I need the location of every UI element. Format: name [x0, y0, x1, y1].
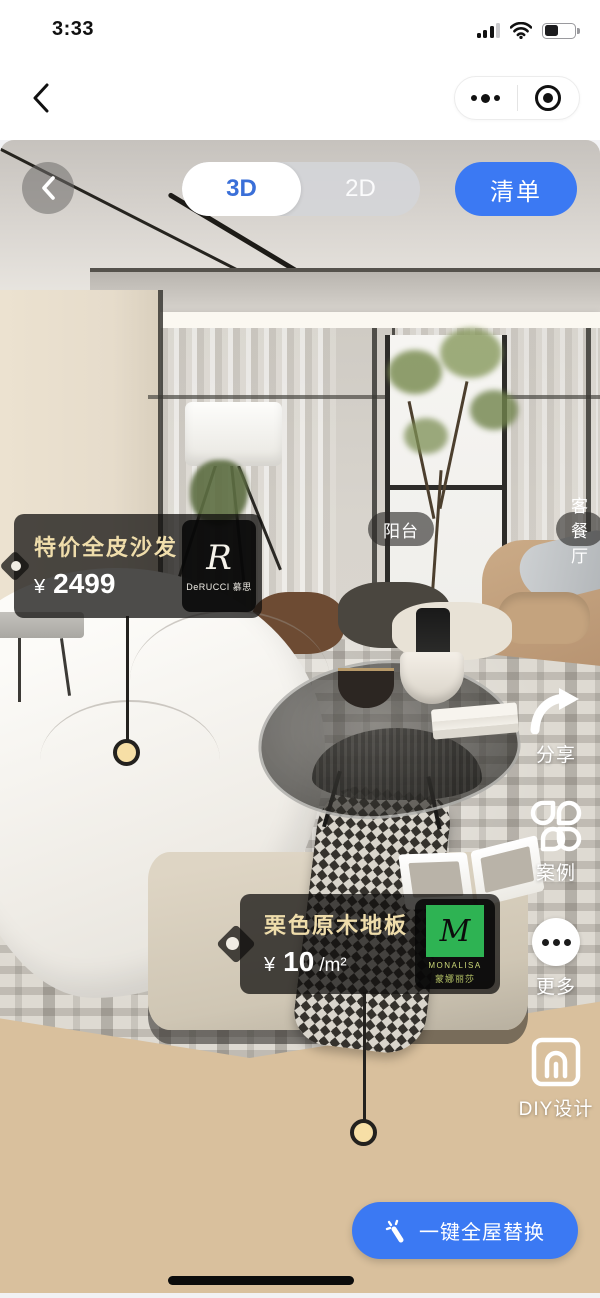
product-price: ¥10/m²: [264, 946, 347, 978]
share-arrow-icon: [529, 686, 583, 734]
currency-symbol: ¥: [264, 954, 275, 976]
nav-bar: [0, 56, 600, 140]
more-button[interactable]: 更多: [522, 918, 590, 999]
home-indicator: [168, 1276, 354, 1285]
diy-frame-icon: [530, 1036, 582, 1088]
back-chevron-icon: [32, 83, 49, 113]
ellipsis-circle-icon: [532, 918, 580, 966]
status-time: 3:33: [52, 18, 94, 41]
product-title: 栗色原木地板: [264, 908, 408, 940]
share-button[interactable]: 分享: [522, 686, 590, 767]
miniprogram-capsule: [454, 76, 580, 120]
replace-all-label: 一键全屋替换: [419, 1216, 545, 1245]
diy-label: DIY设计: [519, 1094, 594, 1121]
room-3d-viewport[interactable]: 3D 2D 清单 阳台 客餐厅 特价全皮沙发 ¥2499 R DeRUCCI 慕…: [0, 140, 600, 1294]
product-title: 特价全皮沙发: [34, 530, 178, 562]
tree-foliage: [388, 350, 442, 394]
side-table-leg: [18, 638, 21, 702]
back-chevron-icon: [41, 176, 55, 200]
capsule-close-button[interactable]: [518, 77, 580, 119]
brand-name: DeRUCCI 慕思: [186, 580, 252, 593]
room-label-living-dining[interactable]: 客餐厅: [556, 512, 600, 546]
wifi-icon: [510, 22, 532, 39]
room-label-balcony[interactable]: 阳台: [368, 512, 434, 546]
list-button[interactable]: 清单: [455, 162, 577, 216]
product-tag-floor[interactable]: 栗色原木地板 ¥10/m² M MONALISA 蒙娜丽莎: [206, 894, 500, 994]
capsule-more-button[interactable]: [455, 77, 517, 119]
price-value: 10: [283, 946, 314, 977]
battery-icon: [542, 23, 576, 39]
floor-anchor-dot[interactable]: [350, 1119, 377, 1146]
cases-label: 案例: [536, 858, 576, 885]
status-icons: [477, 22, 577, 39]
tag-anchor-line: [363, 992, 366, 1122]
more-label: 更多: [536, 972, 576, 999]
brand-monogram: R: [206, 540, 232, 576]
replace-all-button[interactable]: 一键全屋替换: [352, 1202, 578, 1259]
bottom-strip: [0, 1293, 600, 1298]
back-button[interactable]: [20, 78, 60, 118]
tree-foliage: [440, 328, 502, 378]
tab-3d[interactable]: 3D: [182, 162, 301, 216]
brand-name-cn: 蒙娜丽莎: [435, 972, 475, 985]
clover-grid-icon: [530, 800, 582, 852]
tag-hole: [11, 561, 21, 571]
share-label: 分享: [536, 740, 576, 767]
more-dots-icon: [471, 94, 500, 103]
tree-foliage: [404, 418, 448, 454]
target-circle-icon: [535, 85, 561, 111]
brand-monogram-tile: M: [426, 905, 484, 957]
currency-symbol: ¥: [34, 576, 45, 598]
brand-logo-monalisa: M MONALISA 蒙娜丽莎: [415, 899, 495, 989]
scene-back-button[interactable]: [22, 162, 74, 214]
diy-design-button[interactable]: DIY设计: [514, 1036, 598, 1121]
tab-2d[interactable]: 2D: [301, 162, 420, 216]
tag-hole: [226, 937, 239, 950]
sofa-anchor-dot[interactable]: [113, 739, 140, 766]
price-value: 2499: [53, 568, 115, 599]
status-bar: 3:33: [0, 0, 600, 56]
tree-foliage: [470, 390, 518, 430]
brand-monogram: M: [440, 914, 471, 949]
magic-wand-icon: [385, 1219, 409, 1243]
floor-lamp-shade: [185, 402, 282, 466]
cases-button[interactable]: 案例: [522, 800, 590, 885]
ceiling-recess: [90, 268, 600, 314]
brand-logo-derucci: R DeRUCCI 慕思: [182, 520, 256, 612]
signal-icon: [477, 23, 501, 38]
product-price: ¥2499: [34, 568, 115, 600]
brand-name: MONALISA: [428, 961, 481, 970]
product-tag-sofa[interactable]: 特价全皮沙发 ¥2499 R DeRUCCI 慕思: [4, 514, 262, 618]
tag-anchor-line: [126, 616, 129, 742]
view-mode-toggle: 3D 2D: [182, 162, 420, 216]
price-unit: /m²: [319, 955, 346, 976]
